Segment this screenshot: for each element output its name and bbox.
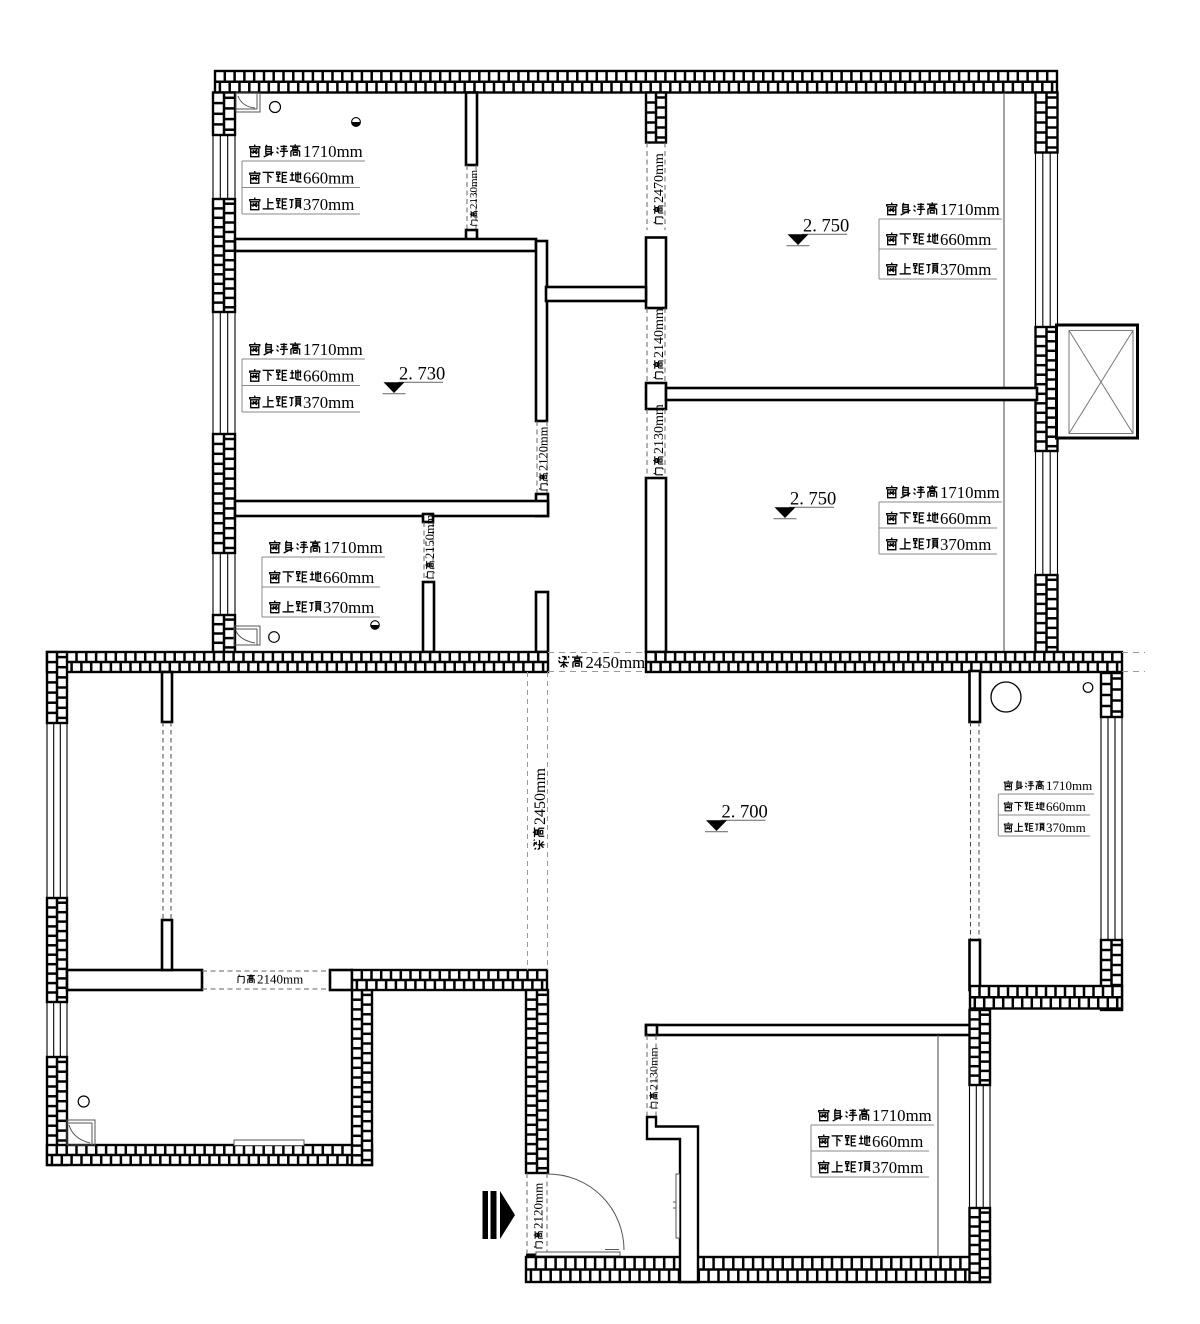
svg-text:1710mm: 1710mm — [940, 483, 1000, 502]
svg-text:1710mm: 1710mm — [872, 1106, 932, 1125]
svg-text:370mm: 370mm — [303, 393, 354, 412]
svg-text:2120mm: 2120mm — [531, 1183, 546, 1229]
svg-text:2. 750: 2. 750 — [803, 217, 849, 237]
svg-text:660mm: 660mm — [303, 367, 354, 386]
svg-text:660mm: 660mm — [940, 509, 991, 528]
svg-text:370mm: 370mm — [872, 1158, 923, 1177]
svg-text:2. 700: 2. 700 — [722, 803, 768, 823]
svg-text:2150mm: 2150mm — [423, 514, 437, 559]
svg-text:2120mm: 2120mm — [537, 426, 551, 471]
svg-text:370mm: 370mm — [940, 535, 991, 554]
svg-text:660mm: 660mm — [1046, 799, 1086, 814]
svg-text:1710mm: 1710mm — [1046, 778, 1092, 793]
svg-text:1710mm: 1710mm — [323, 538, 383, 557]
svg-text:370mm: 370mm — [940, 260, 991, 279]
svg-text:2450mm: 2450mm — [532, 768, 549, 825]
svg-text:370mm: 370mm — [303, 195, 354, 214]
svg-text:2130mm: 2130mm — [468, 169, 480, 209]
svg-text:660mm: 660mm — [940, 230, 991, 249]
svg-text:2130mm: 2130mm — [647, 1047, 661, 1090]
svg-text:370mm: 370mm — [323, 598, 374, 617]
svg-text:2130mm: 2130mm — [652, 404, 667, 454]
svg-text:660mm: 660mm — [323, 568, 374, 587]
svg-text:1710mm: 1710mm — [303, 340, 363, 359]
svg-text:2450mm: 2450mm — [586, 653, 646, 672]
svg-text:2140mm: 2140mm — [652, 308, 667, 358]
svg-text:1710mm: 1710mm — [940, 200, 1000, 219]
svg-text:2140mm: 2140mm — [257, 972, 303, 987]
svg-text:2. 730: 2. 730 — [399, 365, 445, 385]
svg-text:2470mm: 2470mm — [652, 153, 667, 203]
svg-text:1710mm: 1710mm — [303, 142, 363, 161]
svg-text:660mm: 660mm — [872, 1132, 923, 1151]
svg-text:660mm: 660mm — [303, 169, 354, 188]
svg-text:370mm: 370mm — [1046, 820, 1086, 835]
svg-text:2. 750: 2. 750 — [790, 490, 836, 510]
